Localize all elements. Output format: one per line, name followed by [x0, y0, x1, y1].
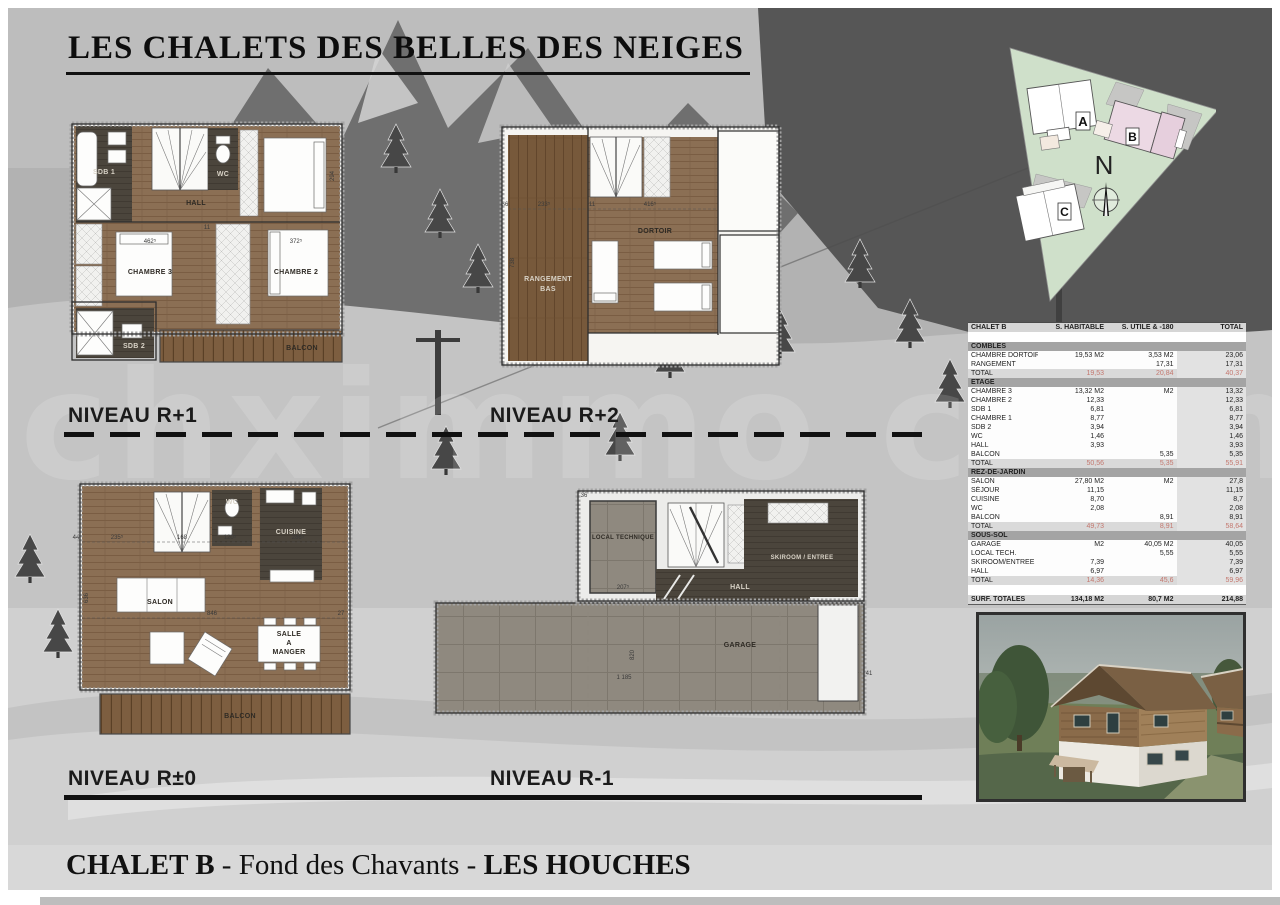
- chalet-render-photo: [976, 612, 1246, 802]
- table-row: GARAGEM240,05 M240,05: [968, 540, 1246, 549]
- dim-11: 11: [204, 225, 211, 231]
- table-row: RANGEMENT17,3117,31: [968, 360, 1246, 369]
- room-label-balcon: BALCON: [286, 345, 318, 352]
- room-label-rangement-2: BAS: [540, 286, 556, 293]
- table-row: SÉJOUR11,1511,15: [968, 486, 1246, 495]
- room-label-salle-1: SALLE: [277, 631, 301, 638]
- table-total-row: TOTAL50,565,3555,91: [968, 459, 1246, 468]
- table-row: BALCON8,918,91: [968, 513, 1246, 522]
- chalet-illustration: [979, 615, 1243, 799]
- dim-416: 416⁵: [644, 201, 657, 208]
- room-label-chambre2: CHAMBRE 2: [274, 269, 318, 276]
- table-total-row: TOTAL14,3645,659,96: [968, 576, 1246, 585]
- site-label-b: B: [1128, 130, 1137, 144]
- table-spacer-row: [968, 585, 1246, 595]
- table-row: SALON27,80 M2M227,8: [968, 477, 1246, 486]
- table-section-row: ETAGE: [968, 378, 1246, 387]
- bottom-strip: [40, 897, 1280, 905]
- table-section-row: REZ-DE-JARDIN: [968, 468, 1246, 477]
- footer-town: LES HOUCHES: [484, 849, 691, 881]
- site-plan: A B C N: [988, 38, 1216, 304]
- table-row: CHAMBRE 212,3312,33: [968, 396, 1246, 405]
- table-header-row: CHALET BS. HABITABLES. UTILE & -180TOTAL: [968, 323, 1246, 333]
- room-label-sdb2: SDB 2: [123, 343, 145, 350]
- table-row: SDB 23,943,94: [968, 423, 1246, 432]
- site-label-c: C: [1060, 205, 1069, 219]
- table-grand-total-row: SURF. TOTALES134,18 M280,7 M2214,88: [968, 595, 1246, 605]
- room-label-dortoir: DORTOIR: [638, 228, 672, 235]
- table-row: LOCAL TECH.5,555,55: [968, 549, 1246, 558]
- dim-235: 235⁵: [111, 534, 124, 541]
- dim-ch2: 372⁵: [290, 238, 303, 245]
- dim-11: 11: [589, 202, 596, 208]
- dim-1185: 1 185: [616, 675, 632, 681]
- room-label-salon: SALON: [147, 599, 173, 606]
- table-spacer-row: [968, 332, 1246, 342]
- table-row: WC1,461,46: [968, 432, 1246, 441]
- level-label-rm1: NIVEAU R-1: [490, 767, 614, 791]
- level-label-r1: NIVEAU R+1: [68, 404, 197, 428]
- room-label-wc: WC: [217, 171, 229, 178]
- dim-636: 636: [84, 592, 90, 603]
- table-row: HALL6,976,97: [968, 567, 1246, 576]
- room-label-hall: HALL: [186, 200, 206, 207]
- room-label-balcon: BALCON: [224, 713, 256, 720]
- dim-36: 36: [581, 493, 588, 499]
- room-label-hall: HALL: [730, 584, 750, 591]
- dim-120: 120⁵: [224, 534, 237, 541]
- dim-ch3: 462⁵: [144, 238, 157, 245]
- floor-plan-r1: SDB 1 WC 294 HALL 462⁵ CHAMBRE 3 11 372⁵…: [64, 112, 350, 376]
- floor-plan-rm1: LOCAL TECHNIQUE 207⁵ 36 SKIROOM / ENTREE…: [428, 477, 875, 729]
- table-total-row: TOTAL19,5320,8440,37: [968, 369, 1246, 378]
- level-label-r2: NIVEAU R+2: [490, 404, 619, 428]
- footer-location: - Fond des Chavants -: [215, 849, 484, 881]
- table-row: HALL3,933,93: [968, 441, 1246, 450]
- table-row: WC2,082,08: [968, 504, 1246, 513]
- table-section-row: COMBLES: [968, 342, 1246, 351]
- dim-168: 168: [177, 535, 188, 541]
- table-row: SDB 16,816,81: [968, 405, 1246, 414]
- room-label-garage: GARAGE: [724, 642, 757, 649]
- floor-plan-r2: RANGEMENT BAS 738 233⁵ 416⁵ 11 36 DORTOI…: [492, 113, 790, 375]
- table-row: BALCON5,355,35: [968, 450, 1246, 459]
- room-label-salle-3: MANGER: [273, 649, 306, 656]
- room-label-salle-2: A: [286, 640, 291, 647]
- dim-207: 207⁵: [617, 584, 630, 591]
- dim-294: 294: [330, 170, 336, 181]
- surface-table: CHALET BS. HABITABLES. UTILE & -180TOTAL…: [968, 322, 1246, 605]
- table-section-row: SOUS-SOL: [968, 531, 1246, 540]
- table-row: CHAMBRE 313,32 M2M213,32: [968, 387, 1246, 396]
- site-label-a: A: [1078, 114, 1088, 129]
- north-letter: N: [1095, 150, 1114, 180]
- divider-solid: [64, 794, 922, 801]
- dim-738: 738: [510, 257, 516, 268]
- dim-286: 286⁵: [292, 534, 305, 541]
- surface-table-container: CHALET BS. HABITABLES. UTILE & -180TOTAL…: [968, 322, 1246, 605]
- room-label-wc: WC: [226, 499, 238, 506]
- table-row: CHAMBRE 18,778,77: [968, 414, 1246, 423]
- dim-846: 846: [207, 611, 218, 617]
- level-label-r0: NIVEAU R±0: [68, 767, 197, 791]
- table-row: CUISINE8,708,7: [968, 495, 1246, 504]
- room-label-local-technique: LOCAL TECHNIQUE: [592, 535, 654, 541]
- dim-41: 41: [866, 671, 873, 677]
- table-row: SKIROOM/ENTREE7,397,39: [968, 558, 1246, 567]
- room-label-rangement-1: RANGEMENT: [524, 276, 572, 283]
- footer-chalet: CHALET B: [66, 849, 215, 881]
- room-label-sdb1: SDB 1: [93, 169, 115, 176]
- room-label-chambre3: CHAMBRE 3: [128, 269, 172, 276]
- plan-sheet: chximmo chamonix LES CHALETS DES BELLES …: [0, 0, 1280, 905]
- floor-plan-r0: WC CUISINE 235⁵ 168 120⁵ 286⁵ 44 636 SAL…: [62, 458, 358, 760]
- room-label-skiroom: SKIROOM / ENTREE: [771, 555, 834, 561]
- table-row: CHAMBRE DORTOIR19,53 M23,53 M223,06: [968, 351, 1246, 360]
- divider-dashed: [64, 431, 936, 438]
- table-total-row: TOTAL49,738,9158,64: [968, 522, 1246, 531]
- dim-27: 27: [338, 611, 345, 617]
- page-title: LES CHALETS DES BELLES DES NEIGES: [66, 30, 750, 75]
- dim-233: 233⁵: [538, 201, 551, 208]
- dim-820: 820: [630, 649, 636, 660]
- footer-caption: CHALET B - Fond des Chavants - LES HOUCH…: [66, 849, 691, 882]
